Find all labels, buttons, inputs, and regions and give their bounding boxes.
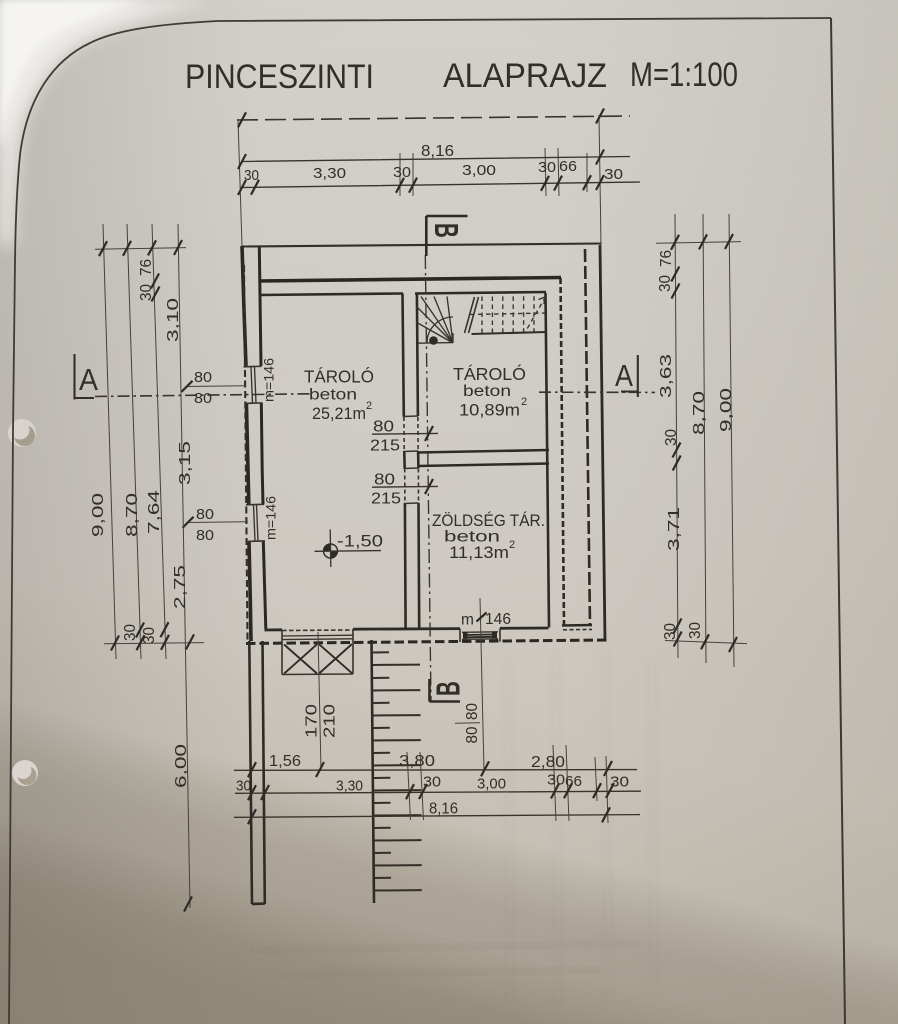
svg-text:30: 30: [236, 778, 251, 795]
svg-text:8,16: 8,16: [429, 801, 458, 818]
svg-text:ALAPRAJZ: ALAPRAJZ: [443, 57, 607, 95]
svg-text:66: 66: [565, 773, 582, 790]
svg-text:m: m: [461, 612, 474, 629]
svg-text:PINCESZINTI: PINCESZINTI: [185, 58, 374, 96]
svg-text:A: A: [615, 358, 633, 393]
svg-text:2: 2: [509, 539, 515, 551]
svg-text:30: 30: [141, 627, 158, 644]
svg-text:30: 30: [662, 623, 679, 640]
svg-text:170: 170: [304, 704, 321, 738]
svg-text:66: 66: [559, 158, 577, 175]
svg-text:80: 80: [194, 390, 212, 407]
svg-text:10,89m: 10,89m: [459, 401, 520, 420]
svg-text:2,75: 2,75: [172, 565, 189, 609]
svg-text:30: 30: [122, 624, 139, 641]
svg-text:3,71: 3,71: [666, 507, 683, 551]
svg-text:30: 30: [423, 774, 441, 791]
svg-text:TÁROLÓ: TÁROLÓ: [304, 366, 374, 387]
svg-text:7,64: 7,64: [146, 489, 163, 534]
svg-text:30: 30: [538, 159, 556, 176]
svg-text:146: 146: [485, 611, 511, 628]
svg-text:2: 2: [366, 400, 372, 412]
svg-text:2,80: 2,80: [531, 754, 565, 771]
svg-text:30: 30: [657, 275, 674, 292]
svg-text:A: A: [79, 362, 98, 397]
svg-text:m=146: m=146: [262, 358, 277, 402]
svg-text:76: 76: [138, 259, 155, 276]
svg-text:80: 80: [464, 726, 481, 743]
svg-text:3,00: 3,00: [462, 162, 496, 179]
svg-text:25,21m: 25,21m: [312, 404, 366, 423]
svg-text:3,63: 3,63: [658, 354, 675, 398]
svg-text:80: 80: [194, 369, 212, 386]
svg-text:30: 30: [604, 166, 623, 183]
svg-text:9,00: 9,00: [718, 387, 735, 432]
svg-text:80: 80: [196, 506, 214, 523]
svg-text:80: 80: [373, 419, 394, 436]
svg-text:ZÖLDSÉG TÁR.: ZÖLDSÉG TÁR.: [432, 511, 545, 530]
svg-text:2: 2: [521, 396, 527, 408]
svg-text:beton: beton: [309, 387, 357, 404]
svg-text:m=146: m=146: [264, 496, 279, 540]
svg-text:3,30: 3,30: [336, 778, 363, 795]
svg-text:3,80: 3,80: [399, 753, 435, 770]
svg-text:M=1:100: M=1:100: [630, 56, 738, 94]
svg-text:6,00: 6,00: [173, 743, 190, 788]
svg-text:80: 80: [464, 703, 481, 720]
svg-text:215: 215: [370, 438, 400, 455]
svg-text:3,00: 3,00: [477, 776, 506, 793]
svg-text:9,00: 9,00: [90, 492, 107, 537]
svg-text:8,70: 8,70: [691, 390, 708, 435]
svg-text:210: 210: [322, 704, 339, 738]
svg-text:beton: beton: [463, 383, 511, 400]
svg-text:30: 30: [393, 164, 411, 181]
svg-text:B: B: [429, 681, 466, 696]
svg-text:11,13m: 11,13m: [449, 543, 509, 562]
svg-text:1,56: 1,56: [269, 753, 301, 770]
svg-text:3,10: 3,10: [165, 297, 182, 342]
svg-text:76: 76: [658, 250, 675, 267]
svg-text:3,30: 3,30: [313, 165, 346, 182]
svg-text:30: 30: [663, 429, 680, 446]
svg-text:30: 30: [610, 774, 629, 791]
svg-text:3,15: 3,15: [177, 441, 194, 485]
svg-text:80: 80: [374, 472, 395, 489]
svg-text:8,16: 8,16: [421, 143, 454, 160]
svg-text:B: B: [428, 223, 465, 238]
svg-text:30: 30: [687, 622, 704, 639]
svg-text:TÁROLÓ: TÁROLÓ: [453, 363, 526, 384]
svg-text:30: 30: [244, 167, 259, 184]
svg-text:215: 215: [371, 491, 401, 508]
svg-text:-1,50: -1,50: [337, 533, 383, 551]
svg-text:8,70: 8,70: [124, 492, 141, 537]
svg-text:80: 80: [196, 527, 214, 544]
svg-text:30: 30: [138, 284, 155, 301]
